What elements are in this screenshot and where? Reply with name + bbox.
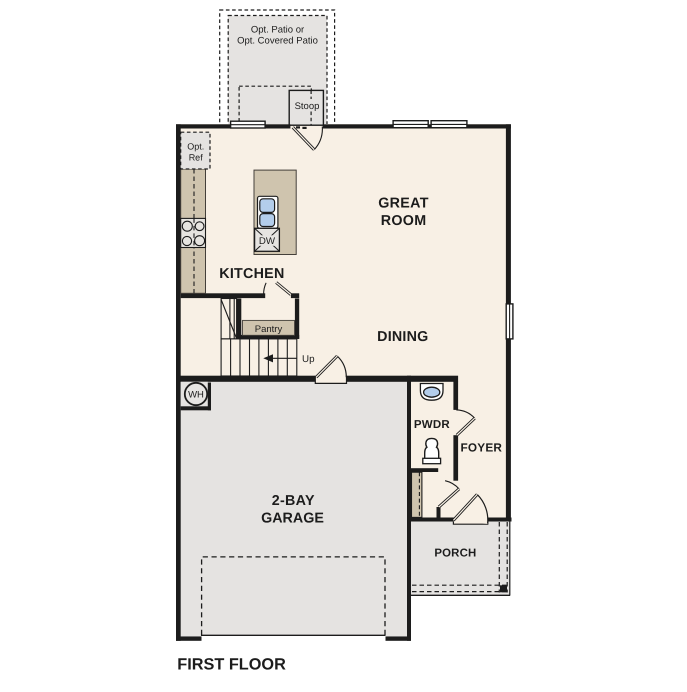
svg-text:2-BAY: 2-BAY (272, 493, 315, 509)
svg-text:PWDR: PWDR (414, 419, 450, 431)
svg-text:GARAGE: GARAGE (261, 511, 324, 527)
svg-text:Opt. Patio or: Opt. Patio or (251, 25, 304, 36)
svg-text:DINING: DINING (377, 329, 428, 345)
svg-text:FOYER: FOYER (460, 441, 502, 455)
svg-text:WH: WH (188, 390, 204, 401)
svg-text:Up: Up (302, 354, 315, 365)
svg-text:KITCHEN: KITCHEN (219, 266, 284, 282)
svg-text:Ref: Ref (189, 153, 204, 163)
svg-text:Pantry: Pantry (255, 324, 283, 335)
svg-text:Opt. Covered Patio: Opt. Covered Patio (237, 36, 318, 47)
svg-text:Stoop: Stoop (295, 101, 320, 112)
svg-text:ROOM: ROOM (381, 213, 427, 229)
svg-text:GREAT: GREAT (378, 196, 428, 212)
svg-text:FIRST FLOOR: FIRST FLOOR (177, 656, 286, 674)
svg-text:DW: DW (259, 236, 276, 247)
svg-text:PORCH: PORCH (434, 547, 476, 559)
svg-text:Opt.: Opt. (187, 142, 204, 152)
